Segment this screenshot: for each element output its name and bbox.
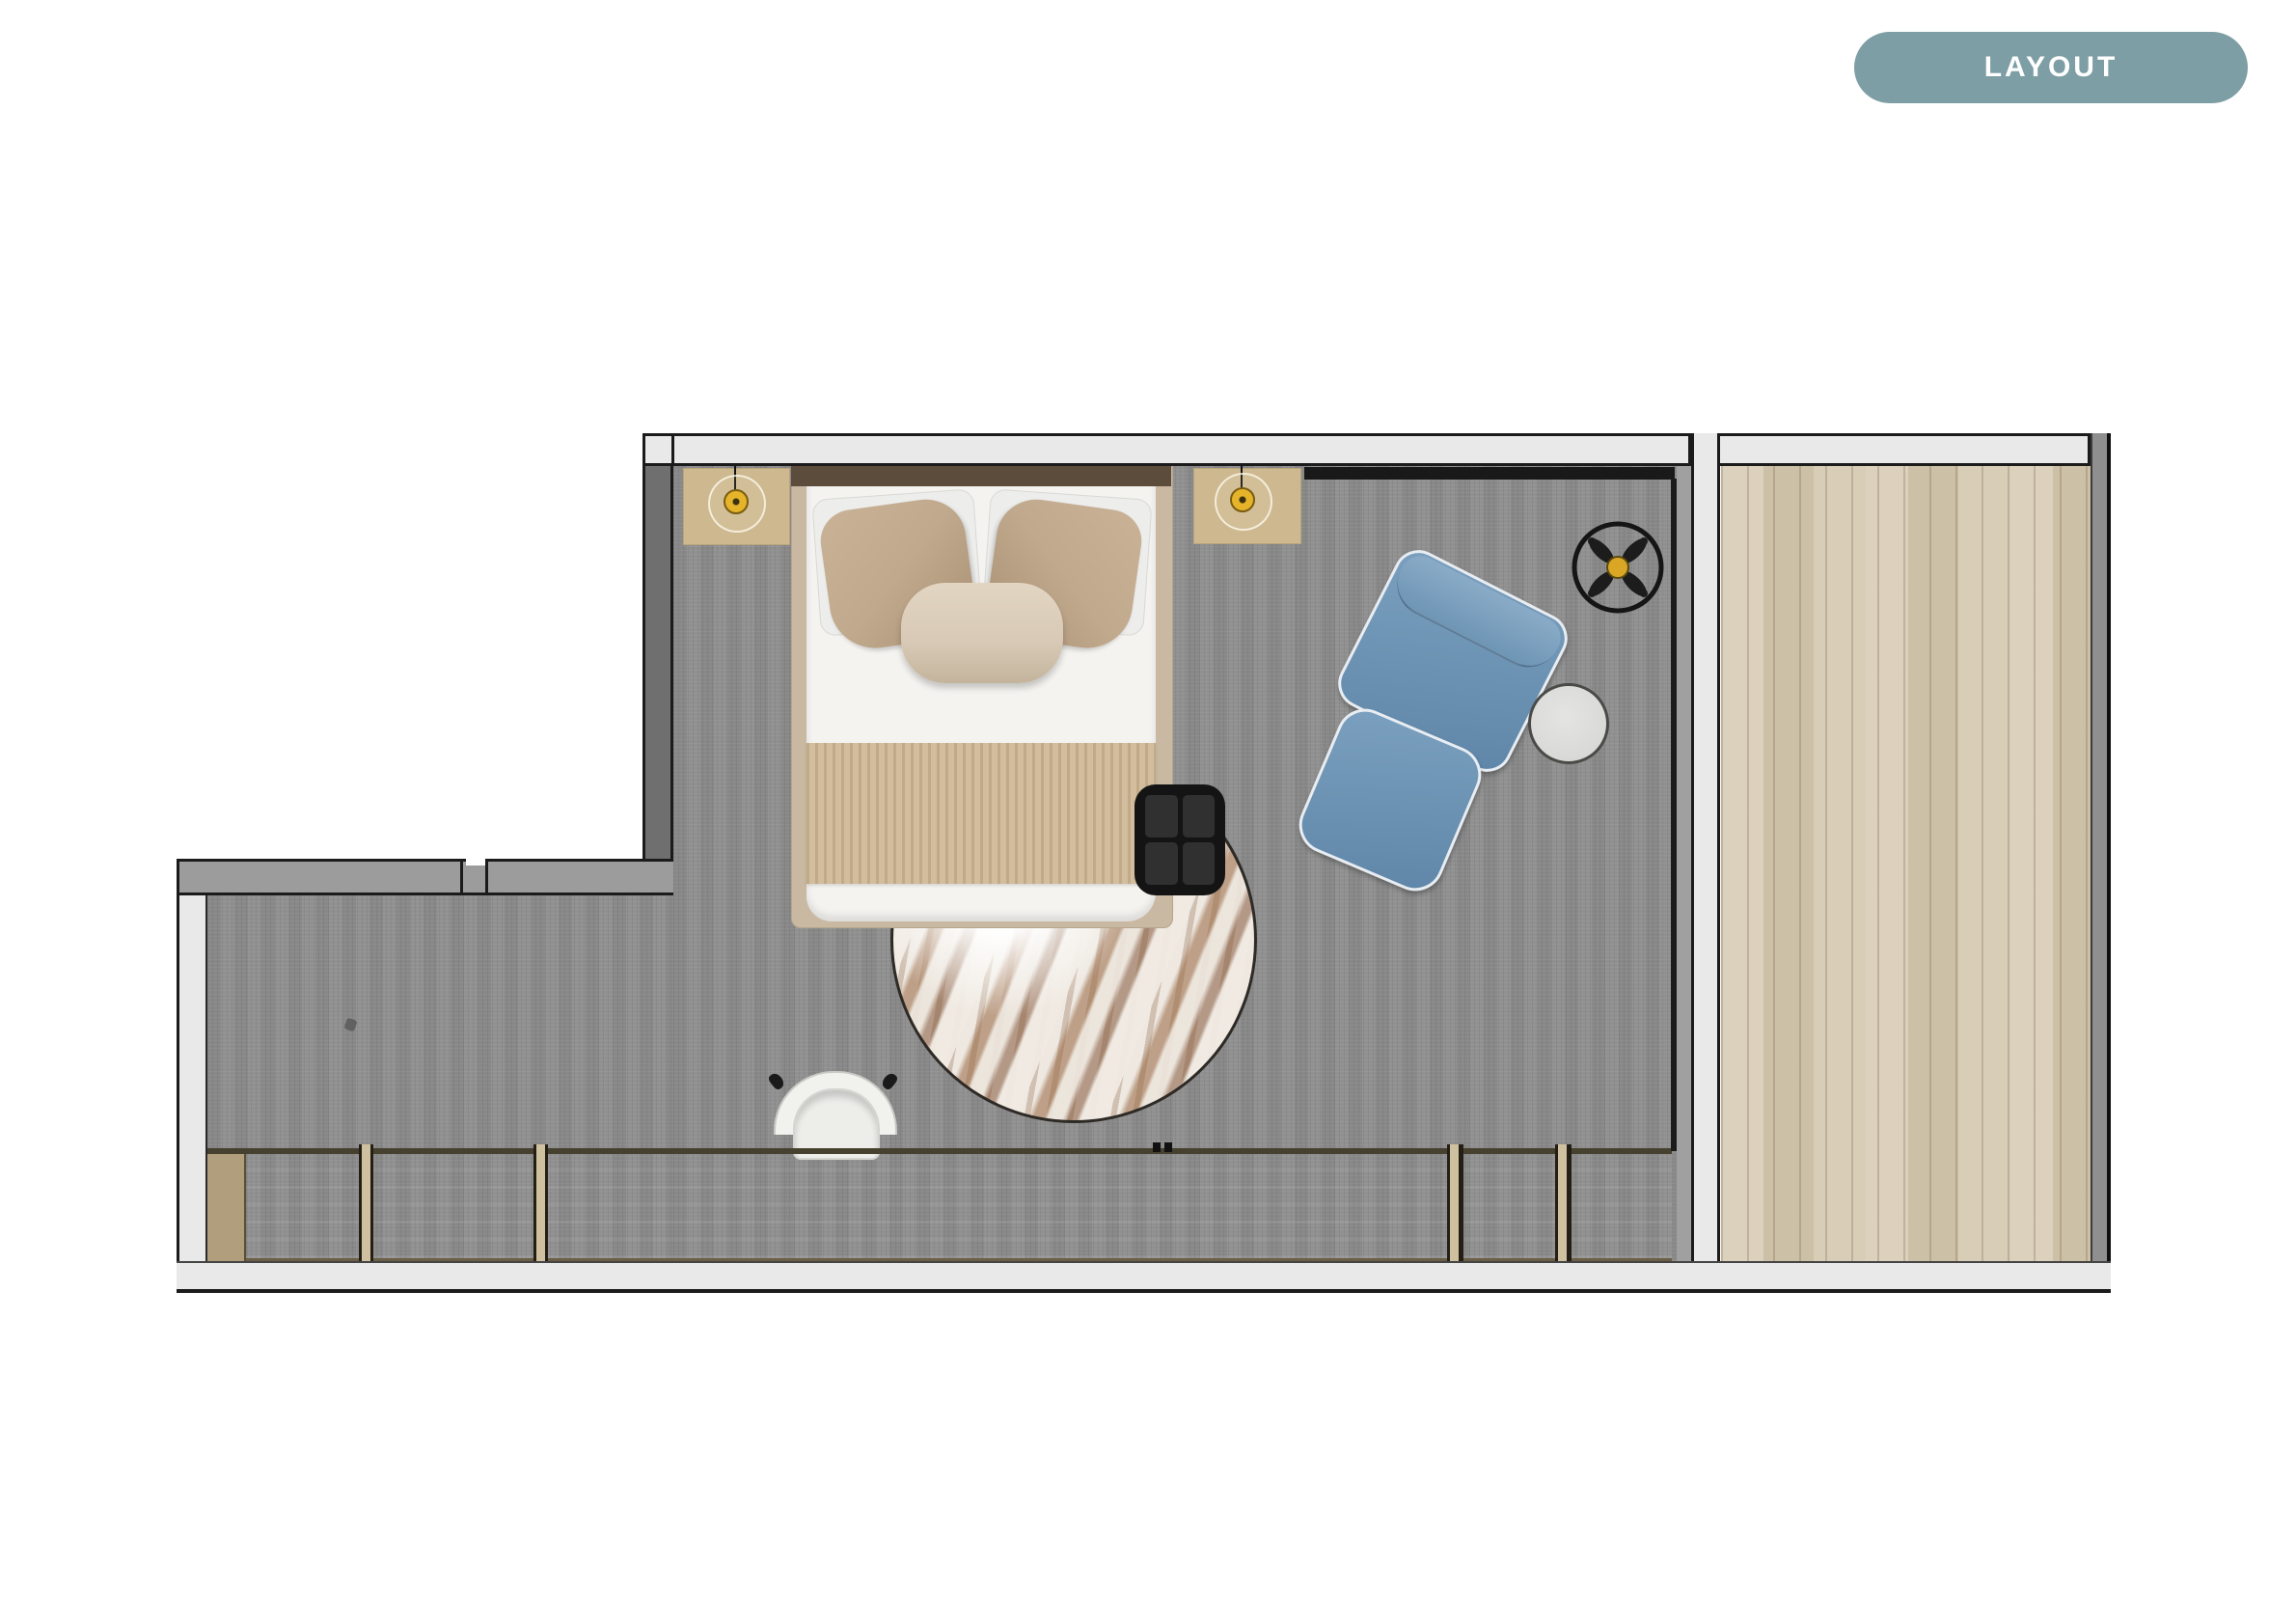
pendant-bulb-right <box>1230 487 1255 512</box>
layout-button[interactable]: LAYOUT <box>1854 32 2248 103</box>
top-wall <box>642 433 2111 466</box>
balcony-divider-wall <box>1691 433 1720 1293</box>
bottom-wall <box>177 1261 2111 1293</box>
desk-divider <box>1555 1144 1572 1261</box>
wall-joint <box>671 433 674 466</box>
black-coffee-table <box>1134 784 1225 895</box>
balcony-right-wall <box>2091 433 2111 1293</box>
sliding-glass-window <box>1671 479 1677 1151</box>
table-quadrant <box>1183 842 1216 885</box>
balcony-wood-floor <box>1721 466 2091 1261</box>
desk-end-panel <box>207 1154 246 1261</box>
wall-joint <box>1717 433 1720 466</box>
wall-joint <box>2088 433 2091 466</box>
table-quadrant <box>1145 795 1178 838</box>
headboard <box>791 466 1171 486</box>
pendant-bulb-left <box>724 489 749 514</box>
curtain-track <box>1304 467 1675 480</box>
table-quadrant <box>1145 842 1178 885</box>
desk-handle <box>1153 1142 1172 1152</box>
window-track <box>1677 466 1691 1261</box>
upper-left-wall <box>642 436 673 862</box>
floor-plan-page: LAYOUT <box>0 0 2296 1621</box>
lumbar-bolster-pillow <box>901 583 1063 683</box>
wall-joint <box>1688 433 1691 466</box>
lower-room-top-wall <box>177 859 673 895</box>
wall-joint <box>460 859 463 895</box>
bed-throw-blanket <box>806 743 1156 884</box>
desk-divider <box>533 1144 548 1261</box>
round-side-table <box>1528 683 1609 764</box>
desk-divider <box>359 1144 373 1261</box>
layout-button-label: LAYOUT <box>1984 51 2118 84</box>
desk-divider <box>1447 1144 1463 1261</box>
left-wall <box>177 895 207 1293</box>
ceiling-fan-icon <box>1570 519 1666 616</box>
wall-joint <box>485 859 488 895</box>
table-quadrant <box>1183 795 1216 838</box>
